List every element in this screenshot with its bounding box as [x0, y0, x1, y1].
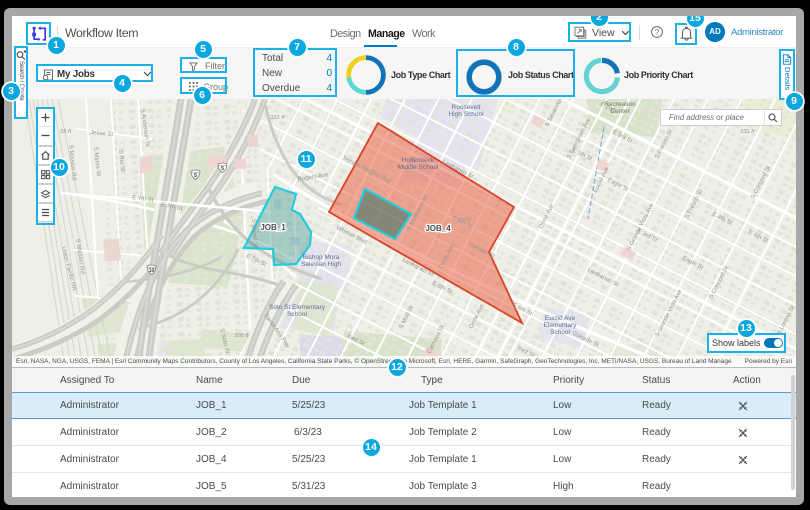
- svg-text:Hollenbeck: Hollenbeck: [402, 157, 435, 164]
- svg-text:55 ft: 55 ft: [60, 129, 72, 135]
- svg-text:JOB_1: JOB_1: [260, 223, 286, 232]
- svg-text:JOB_4: JOB_4: [425, 224, 451, 233]
- svg-text:5: 5: [194, 173, 197, 179]
- svg-text:339 ft: 339 ft: [456, 218, 471, 224]
- svg-text:School: School: [550, 329, 570, 336]
- svg-text:Elementary: Elementary: [544, 322, 578, 329]
- svg-text:308 ft: 308 ft: [234, 333, 249, 339]
- svg-text:Salesian High: Salesian High: [301, 261, 341, 268]
- svg-text:Bishop Mora: Bishop Mora: [303, 254, 340, 261]
- svg-text:Recreation: Recreation: [604, 101, 636, 108]
- svg-text:331 ft: 331 ft: [270, 115, 285, 121]
- svg-text:Soto St Elementary: Soto St Elementary: [269, 304, 326, 311]
- svg-text:Roosevelt: Roosevelt: [452, 104, 481, 111]
- svg-text:?: ?: [654, 28, 659, 37]
- svg-text:High School: High School: [448, 111, 484, 118]
- svg-text:Middle School: Middle School: [398, 164, 439, 171]
- svg-text:10: 10: [149, 268, 155, 274]
- svg-text:School: School: [287, 311, 307, 318]
- svg-text:Center: Center: [610, 108, 630, 115]
- svg-text:331 ft: 331 ft: [740, 129, 755, 135]
- svg-text:5: 5: [221, 166, 224, 172]
- svg-text:Euclid Ave: Euclid Ave: [545, 315, 576, 322]
